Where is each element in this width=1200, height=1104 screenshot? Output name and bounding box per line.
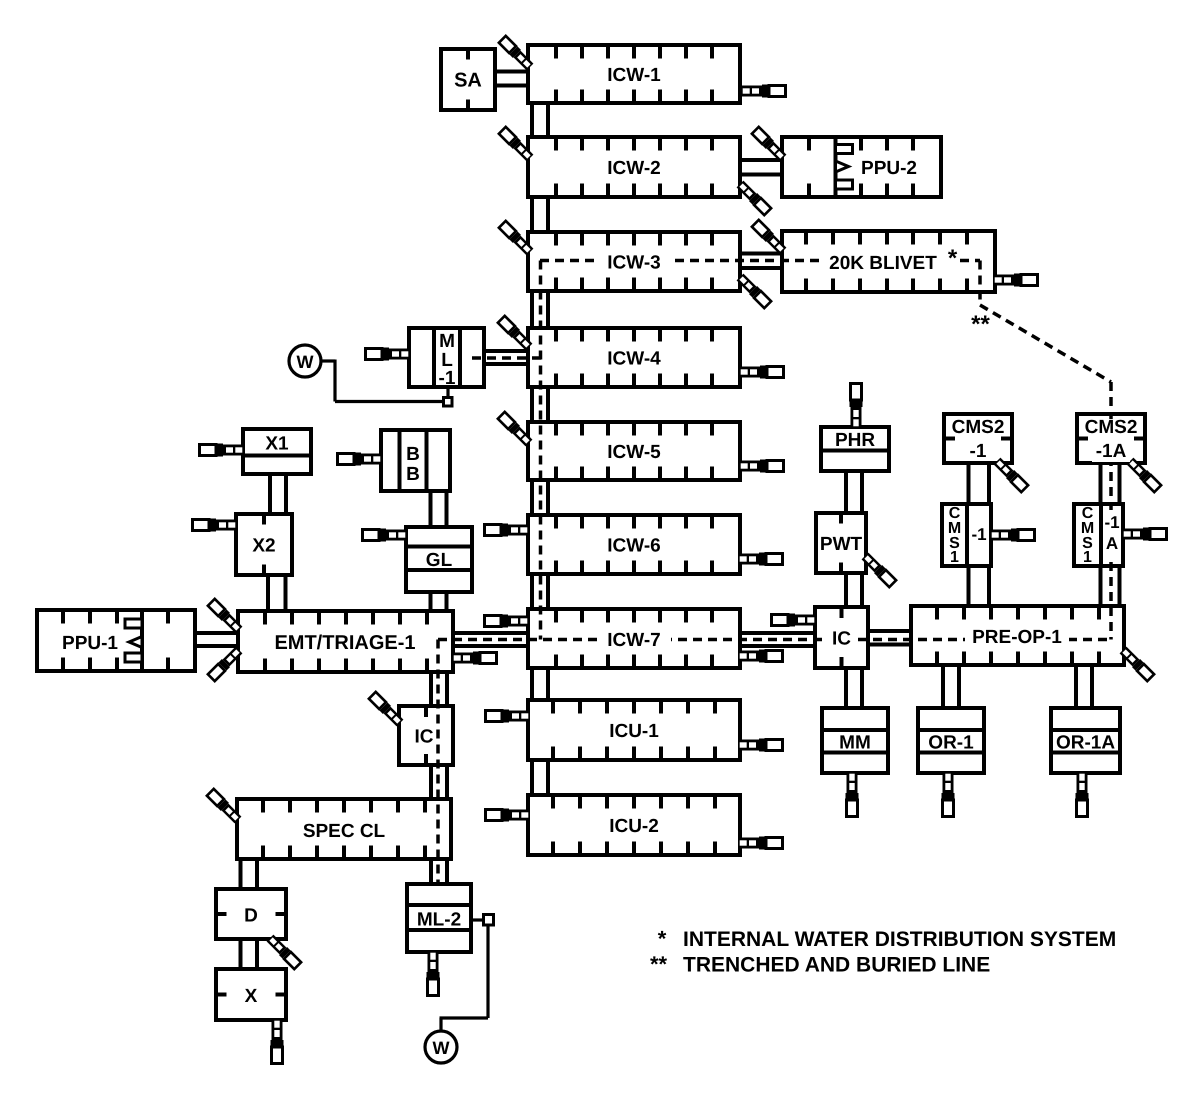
svg-text:W: W bbox=[297, 352, 314, 372]
svg-text:X: X bbox=[245, 986, 258, 1007]
svg-text:*: * bbox=[948, 245, 958, 272]
svg-text:SPEC CL: SPEC CL bbox=[303, 821, 386, 842]
svg-text:SA: SA bbox=[454, 70, 482, 92]
svg-text:PPU-2: PPU-2 bbox=[861, 158, 917, 179]
svg-text:ICU-2: ICU-2 bbox=[609, 816, 659, 837]
svg-text:ICW-6: ICW-6 bbox=[607, 536, 660, 557]
svg-text:-1A: -1A bbox=[1096, 441, 1127, 462]
svg-text:ML-2: ML-2 bbox=[417, 910, 461, 931]
svg-text:ICW-5: ICW-5 bbox=[607, 442, 661, 463]
svg-text:PWT: PWT bbox=[820, 534, 863, 555]
svg-text:ICW-1: ICW-1 bbox=[607, 65, 661, 86]
svg-text:X2: X2 bbox=[252, 536, 275, 557]
svg-text:**: ** bbox=[650, 952, 668, 977]
svg-text:X1: X1 bbox=[265, 434, 289, 455]
svg-text:OR-1: OR-1 bbox=[928, 733, 974, 754]
svg-text:A: A bbox=[1106, 534, 1118, 553]
svg-text:CMS2: CMS2 bbox=[952, 417, 1005, 438]
svg-text:TRENCHED AND BURIED LINE: TRENCHED AND BURIED LINE bbox=[683, 954, 990, 977]
svg-text:EMT/TRIAGE-1: EMT/TRIAGE-1 bbox=[274, 632, 415, 654]
svg-text:ICU-1: ICU-1 bbox=[609, 721, 659, 742]
svg-text:MM: MM bbox=[839, 733, 871, 754]
svg-text:20K BLIVET: 20K BLIVET bbox=[829, 253, 937, 274]
svg-text:1: 1 bbox=[1083, 549, 1092, 566]
svg-text:D: D bbox=[244, 906, 258, 927]
svg-text:1: 1 bbox=[950, 549, 959, 566]
svg-text:-1: -1 bbox=[970, 441, 987, 462]
svg-text:*: * bbox=[658, 926, 667, 951]
svg-text:-1: -1 bbox=[439, 368, 456, 389]
svg-text:W: W bbox=[433, 1038, 450, 1058]
svg-text:ICW-3: ICW-3 bbox=[607, 253, 660, 274]
svg-text:**: ** bbox=[971, 311, 990, 338]
svg-text:IC: IC bbox=[415, 727, 434, 748]
svg-text:M: M bbox=[439, 331, 455, 352]
svg-text:OR-1A: OR-1A bbox=[1056, 733, 1115, 754]
svg-text:PRE-OP-1: PRE-OP-1 bbox=[972, 627, 1062, 648]
svg-text:CMS2: CMS2 bbox=[1085, 417, 1138, 438]
svg-text:IC: IC bbox=[832, 629, 851, 650]
svg-text:PHR: PHR bbox=[835, 430, 875, 451]
svg-text:PPU-1: PPU-1 bbox=[62, 633, 118, 654]
svg-text:INTERNAL WATER DISTRIBUTION SY: INTERNAL WATER DISTRIBUTION SYSTEM bbox=[683, 928, 1116, 951]
svg-text:B: B bbox=[406, 444, 420, 465]
svg-text:ICW-7: ICW-7 bbox=[607, 630, 660, 651]
svg-text:B: B bbox=[406, 464, 420, 485]
svg-text:-1: -1 bbox=[1104, 513, 1119, 532]
svg-text:ICW-2: ICW-2 bbox=[607, 158, 660, 179]
svg-text:GL: GL bbox=[426, 550, 453, 571]
svg-text:-1: -1 bbox=[971, 525, 986, 544]
svg-text:ICW-4: ICW-4 bbox=[607, 349, 661, 370]
